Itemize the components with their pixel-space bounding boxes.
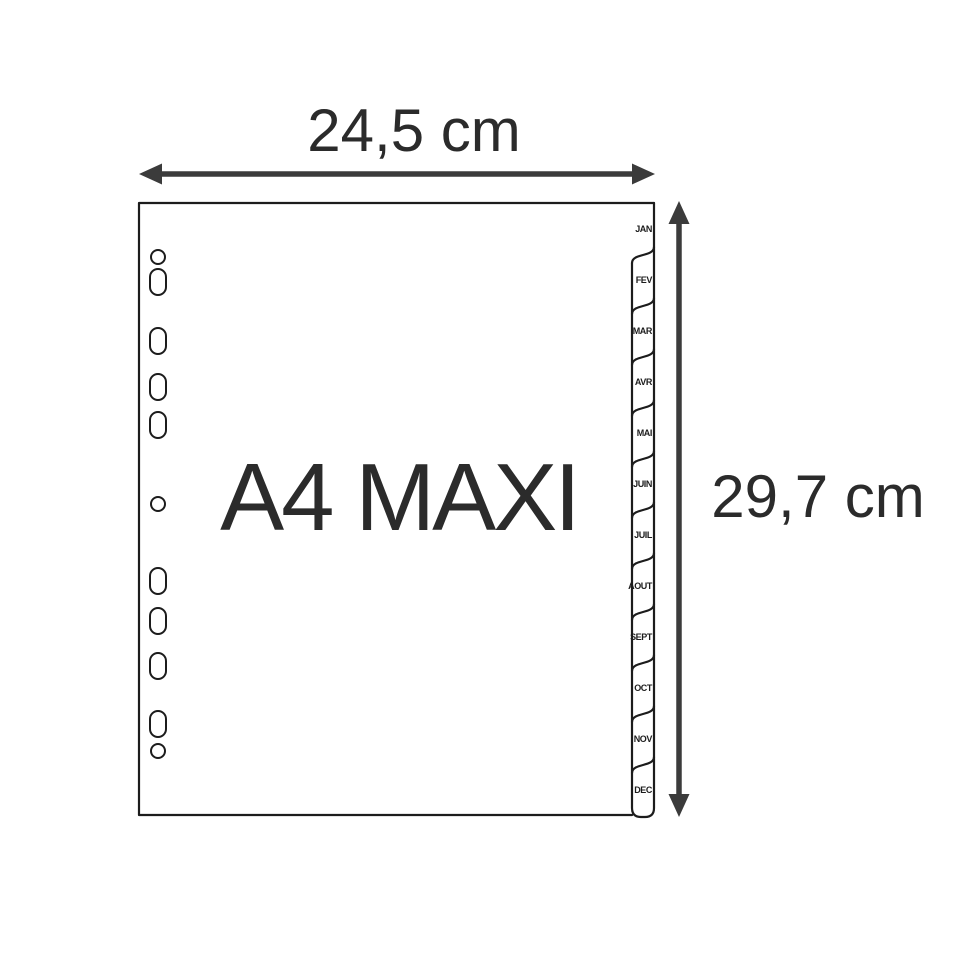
height-dimension: 29,7 cm xyxy=(669,201,925,817)
tab-label-juin: JUIN xyxy=(633,479,652,489)
tab-label-sept: SEPT xyxy=(630,632,653,642)
punch-hole-oblong xyxy=(150,328,166,354)
punch-hole-round xyxy=(151,744,165,758)
punch-holes xyxy=(150,250,166,758)
arrow-down-icon xyxy=(669,794,690,817)
tab-cut xyxy=(632,502,654,518)
punch-hole-oblong xyxy=(150,412,166,438)
tab-cut xyxy=(632,400,654,416)
width-arrow xyxy=(139,164,655,185)
tab-label-fev: FEV xyxy=(636,275,653,285)
height-label: 29,7 cm xyxy=(711,463,924,530)
punch-hole-oblong xyxy=(150,711,166,737)
tab-cut xyxy=(632,604,654,620)
punch-hole-oblong xyxy=(150,568,166,594)
tab-cut xyxy=(632,655,654,671)
tab-cut xyxy=(632,247,654,263)
tab-label-oct: OCT xyxy=(634,683,653,693)
punch-hole-oblong xyxy=(150,653,166,679)
tab-label-nov: NOV xyxy=(634,734,653,744)
width-dimension: 24,5 cm xyxy=(139,97,655,185)
tab-cut xyxy=(632,298,654,314)
divider-diagram-svg: 24,5 cm 29,7 cm xyxy=(0,0,962,962)
tab-cut xyxy=(632,757,654,773)
arrow-left-icon xyxy=(139,164,162,185)
tab-label-jan: JAN xyxy=(635,224,652,234)
punch-hole-oblong xyxy=(150,374,166,400)
width-label: 24,5 cm xyxy=(307,97,520,164)
tab-cut xyxy=(632,706,654,722)
arrow-up-icon xyxy=(669,201,690,224)
punch-hole-oblong xyxy=(150,608,166,634)
tab-label-mar: MAR xyxy=(633,326,653,336)
product-size-label: A4 MAXI xyxy=(220,444,578,551)
height-arrow xyxy=(669,201,690,817)
product-diagram: 24,5 cm 29,7 cm xyxy=(0,0,962,962)
tab-label-juil: JUIL xyxy=(634,530,653,540)
tab-label-dec: DEC xyxy=(634,785,653,795)
tab-cut xyxy=(632,349,654,365)
tab-cut xyxy=(632,553,654,569)
punch-hole-round xyxy=(151,250,165,264)
divider-sheet: JAN FEV MAR AVR MAI JUIN JUIL AOUT SEPT … xyxy=(139,203,654,817)
punch-hole-round xyxy=(151,497,165,511)
tab-label-aout: AOUT xyxy=(628,581,653,591)
punch-hole-oblong xyxy=(150,269,166,295)
tab-label-avr: AVR xyxy=(635,377,653,387)
tab-cut xyxy=(632,451,654,467)
arrow-right-icon xyxy=(632,164,655,185)
tab-label-mai: MAI xyxy=(637,428,652,438)
